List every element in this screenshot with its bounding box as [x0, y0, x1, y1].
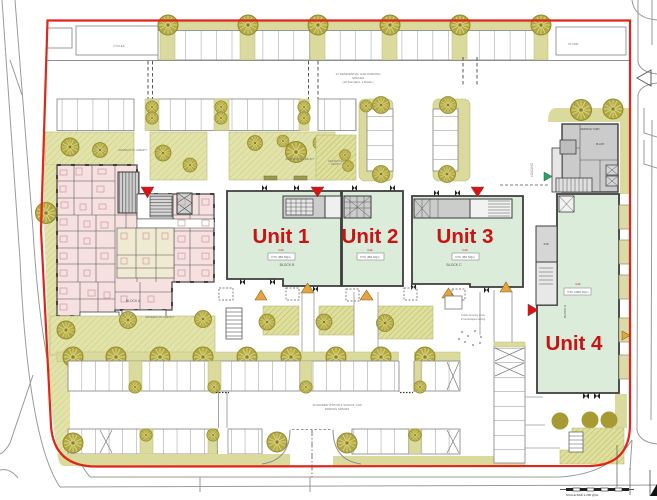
svg-text:AMENITY: AMENITY — [331, 163, 342, 166]
svg-text:FTC 456 SQm: FTC 456 SQm — [360, 255, 380, 259]
svg-text:FTC 456 SQm: FTC 456 SQm — [455, 255, 475, 259]
svg-text:Public Amenity Zone: Public Amenity Zone — [461, 313, 485, 317]
svg-text:CYCLES: CYCLES — [113, 44, 124, 48]
svg-text:PARKING SPACES: PARKING SPACES — [325, 407, 349, 411]
svg-text:Unit 3: Unit 3 — [437, 225, 494, 248]
svg-text:RESIDENTIAL AMENITY: RESIDENTIAL AMENITY — [285, 157, 314, 161]
svg-text:GIA: GIA — [575, 282, 580, 286]
svg-text:BLOCK A: BLOCK A — [126, 299, 141, 303]
svg-text:GIA: GIA — [367, 248, 372, 252]
svg-text:FTC 1456 SQm: FTC 1456 SQm — [567, 290, 589, 294]
svg-text:(16 Standard, 1 Disab.): (16 Standard, 1 Disab.) — [342, 80, 373, 84]
svg-text:ST ORE: ST ORE — [568, 42, 578, 46]
svg-text:RESIDENTIAL AMENITY: RESIDENTIAL AMENITY — [118, 148, 147, 152]
svg-text:FTC 456 SQm: FTC 456 SQm — [271, 255, 291, 259]
svg-text:RESIDENTIAL AMENITY: RESIDENTIAL AMENITY — [145, 315, 174, 319]
svg-text:Unit 1: Unit 1 — [253, 225, 310, 248]
svg-text:Unit 4: Unit 4 — [546, 332, 604, 355]
svg-text:GIA: GIA — [278, 248, 283, 252]
svg-text:SUB: SUB — [544, 243, 549, 246]
svg-text:PLANT: PLANT — [596, 142, 605, 146]
svg-text:LOADING: LOADING — [530, 162, 534, 177]
svg-text:SCALE BAR 1:200 @A1: SCALE BAR 1:200 @A1 — [566, 493, 599, 497]
svg-text:GIA: GIA — [462, 248, 467, 252]
svg-text:in landscaped setting: in landscaped setting — [461, 317, 486, 321]
svg-text:Unit 2: Unit 2 — [342, 225, 399, 248]
svg-text:BLOCK D: BLOCK D — [563, 304, 567, 318]
svg-text:SERVICE YARD: SERVICE YARD — [580, 127, 599, 131]
svg-text:BLOCK C: BLOCK C — [447, 263, 462, 267]
svg-text:BLOCK B: BLOCK B — [280, 263, 295, 267]
